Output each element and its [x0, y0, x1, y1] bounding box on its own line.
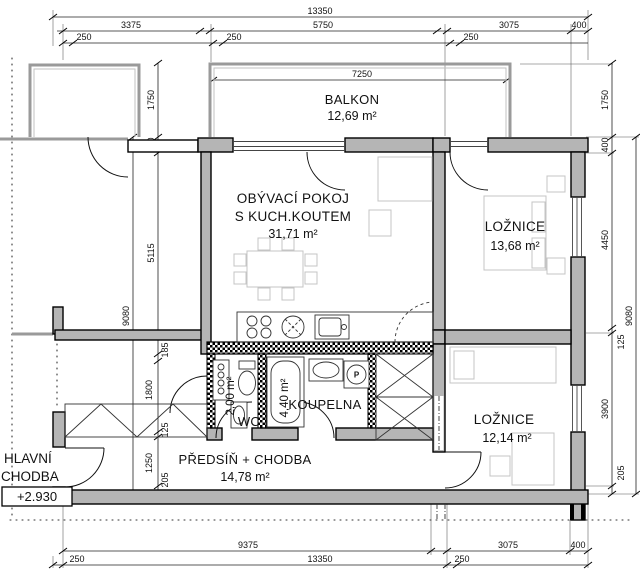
neighbor-balcony-wall	[30, 65, 139, 137]
wardrobe-zigzag	[65, 404, 207, 437]
faucet-icon	[342, 325, 347, 330]
room-area-loznice2: 12,14 m²	[482, 431, 531, 445]
room-label-obyvaci-1: OBÝVACÍ POKOJ	[237, 191, 349, 206]
nightstand	[547, 176, 565, 192]
bedroom2-chair	[490, 456, 510, 476]
pillow	[454, 351, 474, 379]
wall-bath-bottom	[207, 428, 222, 440]
door-bedroom2	[445, 452, 481, 488]
dim-left-125: 125	[160, 422, 170, 437]
dim-left-205: 205	[160, 472, 170, 487]
wall-bottom	[65, 490, 588, 504]
room-label-koupelna: KOUPELNA	[288, 397, 361, 412]
dim-top-seg-2: 5750	[313, 20, 333, 30]
wall-top-seg	[198, 138, 233, 152]
dim-right-3900: 3900	[600, 399, 610, 419]
door-entrance	[65, 448, 104, 487]
floor-plan-svg: 13350 3375 5750 3075 400 250 250 250 725…	[0, 0, 640, 579]
wall-bedroom-divider	[445, 330, 571, 344]
dim-top-total: 13350	[307, 6, 332, 16]
dim-left-1750: 1750	[146, 90, 156, 110]
stove-burner-icon	[247, 316, 257, 326]
chair	[305, 254, 317, 266]
kitchen	[237, 302, 433, 342]
wall-left-seg	[53, 412, 65, 447]
dim-right-400: 400	[600, 137, 610, 152]
floor-plan-canvas: 13350 3375 5750 3075 400 250 250 250 725…	[0, 0, 640, 579]
dim-bottom-off-3: 250	[454, 554, 469, 564]
cabinet-swing-arc	[395, 302, 433, 342]
stove-burner-icon	[261, 316, 271, 326]
room-label-balkon: BALKON	[325, 92, 380, 107]
dim-left-1250: 1250	[144, 453, 154, 473]
room-area-loznice1: 13,68 m²	[490, 239, 539, 253]
wall-post	[581, 504, 585, 520]
neighbor-door-arc	[88, 137, 128, 177]
washing-machine-label: P	[354, 371, 360, 380]
wall-right-seg	[571, 152, 585, 197]
wall-plumbing-band	[207, 342, 433, 354]
chair	[258, 288, 270, 300]
dim-top-seg-3: 3075	[499, 20, 519, 30]
wall-top-left-block	[128, 140, 198, 152]
room-area-balkon: 12,69 m²	[327, 109, 376, 123]
room-label-wc: WC	[238, 414, 260, 429]
dim-right-4450: 4450	[600, 230, 610, 250]
wall-right-seg	[571, 257, 585, 385]
wall-living-left	[201, 152, 211, 354]
dim-left-185: 185	[160, 342, 170, 357]
door-hall-nook	[170, 376, 207, 413]
room-label-predsin: PŘEDSÍŇ + CHODBA	[178, 452, 311, 467]
elevation-value: +2.930	[17, 489, 57, 504]
living-armchair	[369, 210, 391, 236]
hall-wardrobe	[65, 404, 207, 437]
dim-top-off-1: 250	[76, 32, 91, 42]
room-area-obyvaci: 31,71 m²	[268, 227, 317, 241]
wall-bath-bottom	[252, 428, 298, 440]
living-sideboard	[378, 157, 432, 201]
room-label-loznice1: LOŽNICE	[485, 219, 546, 234]
chair	[305, 272, 317, 284]
dim-right-1750: 1750	[600, 90, 610, 110]
room-area-koupelna: 4,40 m²	[279, 378, 291, 417]
stove-burner-icon	[247, 328, 257, 338]
wall-top-seg	[433, 138, 450, 152]
kitchen-sink-basin	[319, 318, 341, 336]
room-labels: BALKON 12,69 m² OBÝVACÍ POKOJ S KUCH.KOU…	[1, 92, 545, 506]
dim-right-205: 205	[616, 465, 626, 480]
toilet-bowl	[239, 371, 256, 395]
chair	[282, 288, 294, 300]
chair	[234, 254, 246, 266]
dim-right-overall: 9080	[624, 306, 634, 326]
wall-top-seg	[488, 138, 588, 152]
door-living-balcony	[307, 152, 345, 190]
door-bedroom1-balcony	[450, 152, 488, 190]
dim-left-overall: 9080	[121, 306, 131, 326]
room-label-obyvaci-2: S KUCH.KOUTEM	[235, 209, 351, 224]
room-area-predsin: 14,78 m²	[220, 470, 269, 484]
dim-bottom-off-1: 250	[69, 554, 84, 564]
corridor-label-2: CHODBA	[1, 469, 59, 484]
dim-bottom-seg-1: 9375	[238, 540, 258, 550]
dim-top-seg-4: 400	[571, 20, 586, 30]
dim-balkon-width: 7250	[352, 69, 372, 79]
dining-table	[247, 251, 303, 287]
stove-burner-icon	[261, 328, 271, 338]
dim-bottom-off-2: 13350	[307, 554, 332, 564]
dim-right-125: 125	[616, 334, 626, 349]
dim-bottom-seg-3: 400	[570, 540, 585, 550]
wall-post	[570, 504, 574, 520]
dim-left-1800: 1800	[144, 380, 154, 400]
dim-bottom-seg-2: 3075	[498, 540, 518, 550]
wall-divider	[433, 152, 445, 330]
wall-divider	[433, 330, 445, 344]
room-label-loznice2: LOŽNICE	[474, 412, 535, 427]
dim-top-off-3: 250	[463, 32, 478, 42]
toilet-tank	[239, 361, 255, 369]
corridor-label-1: HLAVNÍ	[4, 451, 52, 466]
chair	[234, 272, 246, 284]
wall-hall-upper	[55, 330, 207, 340]
dim-top-off-2: 250	[226, 32, 241, 42]
dim-top-seg-1: 3375	[121, 20, 141, 30]
wall-top-seg	[345, 138, 433, 152]
room-area-wc: 2,00 m²	[225, 376, 237, 415]
kitchen-counter	[237, 312, 433, 342]
dim-left-5115: 5115	[146, 243, 156, 262]
nightstand	[547, 258, 565, 274]
hob-cross-icon	[285, 319, 301, 335]
